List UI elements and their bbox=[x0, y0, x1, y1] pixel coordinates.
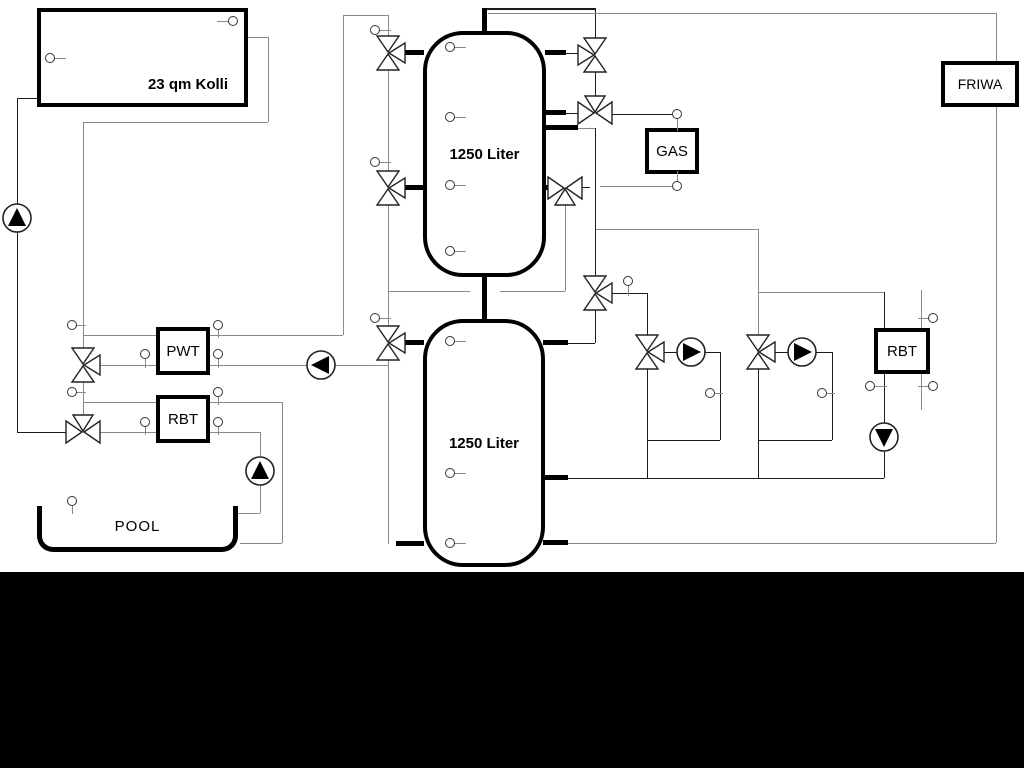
pwt-supply-valve-icon bbox=[61, 343, 105, 387]
tank2-left-valve-icon bbox=[366, 321, 410, 365]
tank1-sensor-icon bbox=[445, 246, 455, 256]
valve-sensor-icon bbox=[623, 276, 633, 286]
rbt2-sensor-icon bbox=[865, 381, 875, 391]
tank2-sensor-stem bbox=[454, 473, 466, 474]
pool-sensor-stem bbox=[72, 505, 73, 514]
riser-sensor-stem bbox=[76, 392, 86, 393]
heating-pump-1-icon bbox=[673, 334, 709, 370]
tank1-sensor-icon bbox=[445, 112, 455, 122]
collector-sensor-stem bbox=[54, 58, 66, 59]
heating1-sensor-icon bbox=[705, 388, 715, 398]
pool-sensor-icon bbox=[67, 496, 77, 506]
pwt-sensor-stem bbox=[218, 358, 219, 368]
heating-pump-2-icon bbox=[784, 334, 820, 370]
rbt-sensor-stem bbox=[145, 426, 146, 435]
gas-supply-valve-icon bbox=[573, 91, 617, 135]
tank1-right-top-valve-icon bbox=[573, 33, 617, 77]
pool-supply-valve-icon bbox=[61, 410, 105, 454]
riser-sensor-icon bbox=[370, 313, 380, 323]
tank1-left-mid-valve-icon bbox=[366, 166, 410, 210]
pwt-sensor-icon bbox=[213, 320, 223, 330]
tank2-sensor-icon bbox=[445, 538, 455, 548]
tank2-supply-valve-icon bbox=[573, 271, 617, 315]
heating2-sensor-icon bbox=[817, 388, 827, 398]
friwa-cold-sensor-icon bbox=[928, 381, 938, 391]
riser-sensor-icon bbox=[67, 320, 77, 330]
diagram-canvas: 23 qm Kolli 1250 Liter 1250 Liter GAS FR… bbox=[0, 0, 1024, 768]
riser-sensor-stem bbox=[379, 162, 391, 163]
pwt-sensor-icon bbox=[213, 349, 223, 359]
pwt-pump-icon bbox=[303, 347, 339, 383]
rbt-sensor-icon bbox=[140, 417, 150, 427]
collector-sensor-icon bbox=[228, 16, 238, 26]
riser-sensor-icon bbox=[370, 157, 380, 167]
heating-valve-1-icon bbox=[625, 330, 669, 374]
tank1-sensor-stem bbox=[454, 185, 466, 186]
gas-return-valve-icon bbox=[543, 166, 587, 210]
riser-sensor-icon bbox=[67, 387, 77, 397]
rbt-sensor-icon bbox=[213, 417, 223, 427]
friwa-cold-sensor-icon bbox=[928, 313, 938, 323]
rbt2-sensor-stem bbox=[874, 386, 887, 387]
tank2-sensor-icon bbox=[445, 468, 455, 478]
heating1-sensor-stem bbox=[714, 393, 723, 394]
rbt-sensor-stem bbox=[218, 396, 219, 405]
tank1-sensor-stem bbox=[454, 251, 466, 252]
tank1-sensor-icon bbox=[445, 180, 455, 190]
solar-pump-icon bbox=[0, 200, 35, 236]
tank2-sensor-stem bbox=[454, 543, 466, 544]
gas-bottom-sensor-icon bbox=[672, 181, 682, 191]
rbt-return-pump-icon bbox=[866, 419, 902, 455]
pwt-sensor-stem bbox=[218, 329, 219, 338]
tank1-sensor-icon bbox=[445, 42, 455, 52]
riser-sensor-stem bbox=[76, 325, 86, 326]
riser-sensor-icon bbox=[370, 25, 380, 35]
gas-top-sensor-icon bbox=[672, 109, 682, 119]
heating-valve-2-icon bbox=[736, 330, 780, 374]
tank2-sensor-stem bbox=[454, 341, 466, 342]
riser-sensor-stem bbox=[379, 30, 391, 31]
heating2-sensor-stem bbox=[826, 393, 835, 394]
collector-sensor-icon bbox=[45, 53, 55, 63]
letterbox-bar bbox=[0, 572, 1024, 768]
tank1-sensor-stem bbox=[454, 117, 466, 118]
pool-pump-icon bbox=[242, 453, 278, 489]
pwt-sensor-icon bbox=[140, 349, 150, 359]
gas-top-sensor-stem bbox=[677, 118, 678, 131]
riser-sensor-stem bbox=[379, 318, 391, 319]
rbt-sensor-stem bbox=[218, 426, 219, 435]
pwt-sensor-stem bbox=[145, 358, 146, 368]
tank1-sensor-stem bbox=[454, 47, 466, 48]
valve-sensor-stem bbox=[628, 285, 629, 296]
tank2-sensor-icon bbox=[445, 336, 455, 346]
tank1-left-top-valve-icon bbox=[366, 31, 410, 75]
rbt-sensor-icon bbox=[213, 387, 223, 397]
